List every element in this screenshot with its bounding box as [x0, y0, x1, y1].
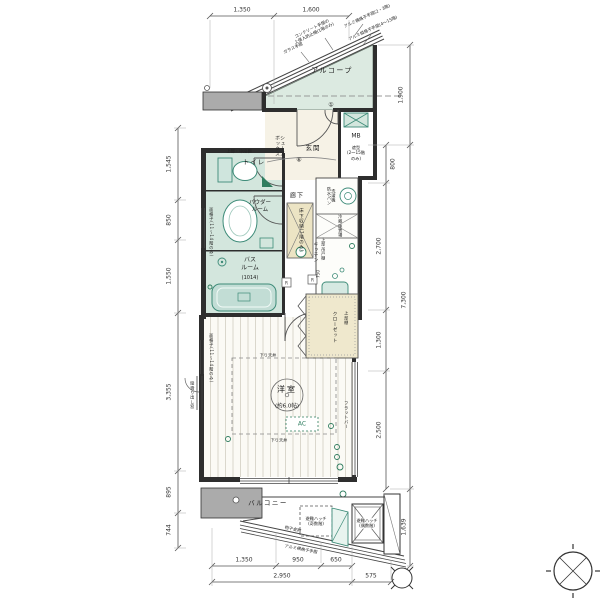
neighbor-wall-top	[203, 92, 262, 110]
remote-box	[308, 275, 317, 284]
neighbor-wall-bottom	[201, 488, 262, 518]
ac-box	[286, 417, 318, 431]
mb-hatch-box	[344, 113, 368, 127]
escape-hatch-even-box	[352, 504, 383, 543]
escape-hatch-odd-box	[300, 506, 332, 536]
column-mark	[205, 86, 210, 91]
gas-outlet-icon	[296, 247, 306, 257]
north-mark-small	[391, 567, 413, 589]
column-mark-dot	[266, 87, 269, 90]
floor-plan-drawing	[0, 0, 600, 600]
genkan-area	[265, 110, 338, 180]
closet-box	[298, 294, 358, 358]
remote-box	[282, 278, 291, 287]
floor-plan-page: アルコープ コンクリート手摺の 上侵入防止柵(1階のみ) ガラス手摺 アルミ横格…	[0, 0, 600, 600]
washer-icon	[340, 188, 356, 204]
north-compass-icon	[546, 544, 600, 598]
balcony-partition	[332, 508, 348, 546]
